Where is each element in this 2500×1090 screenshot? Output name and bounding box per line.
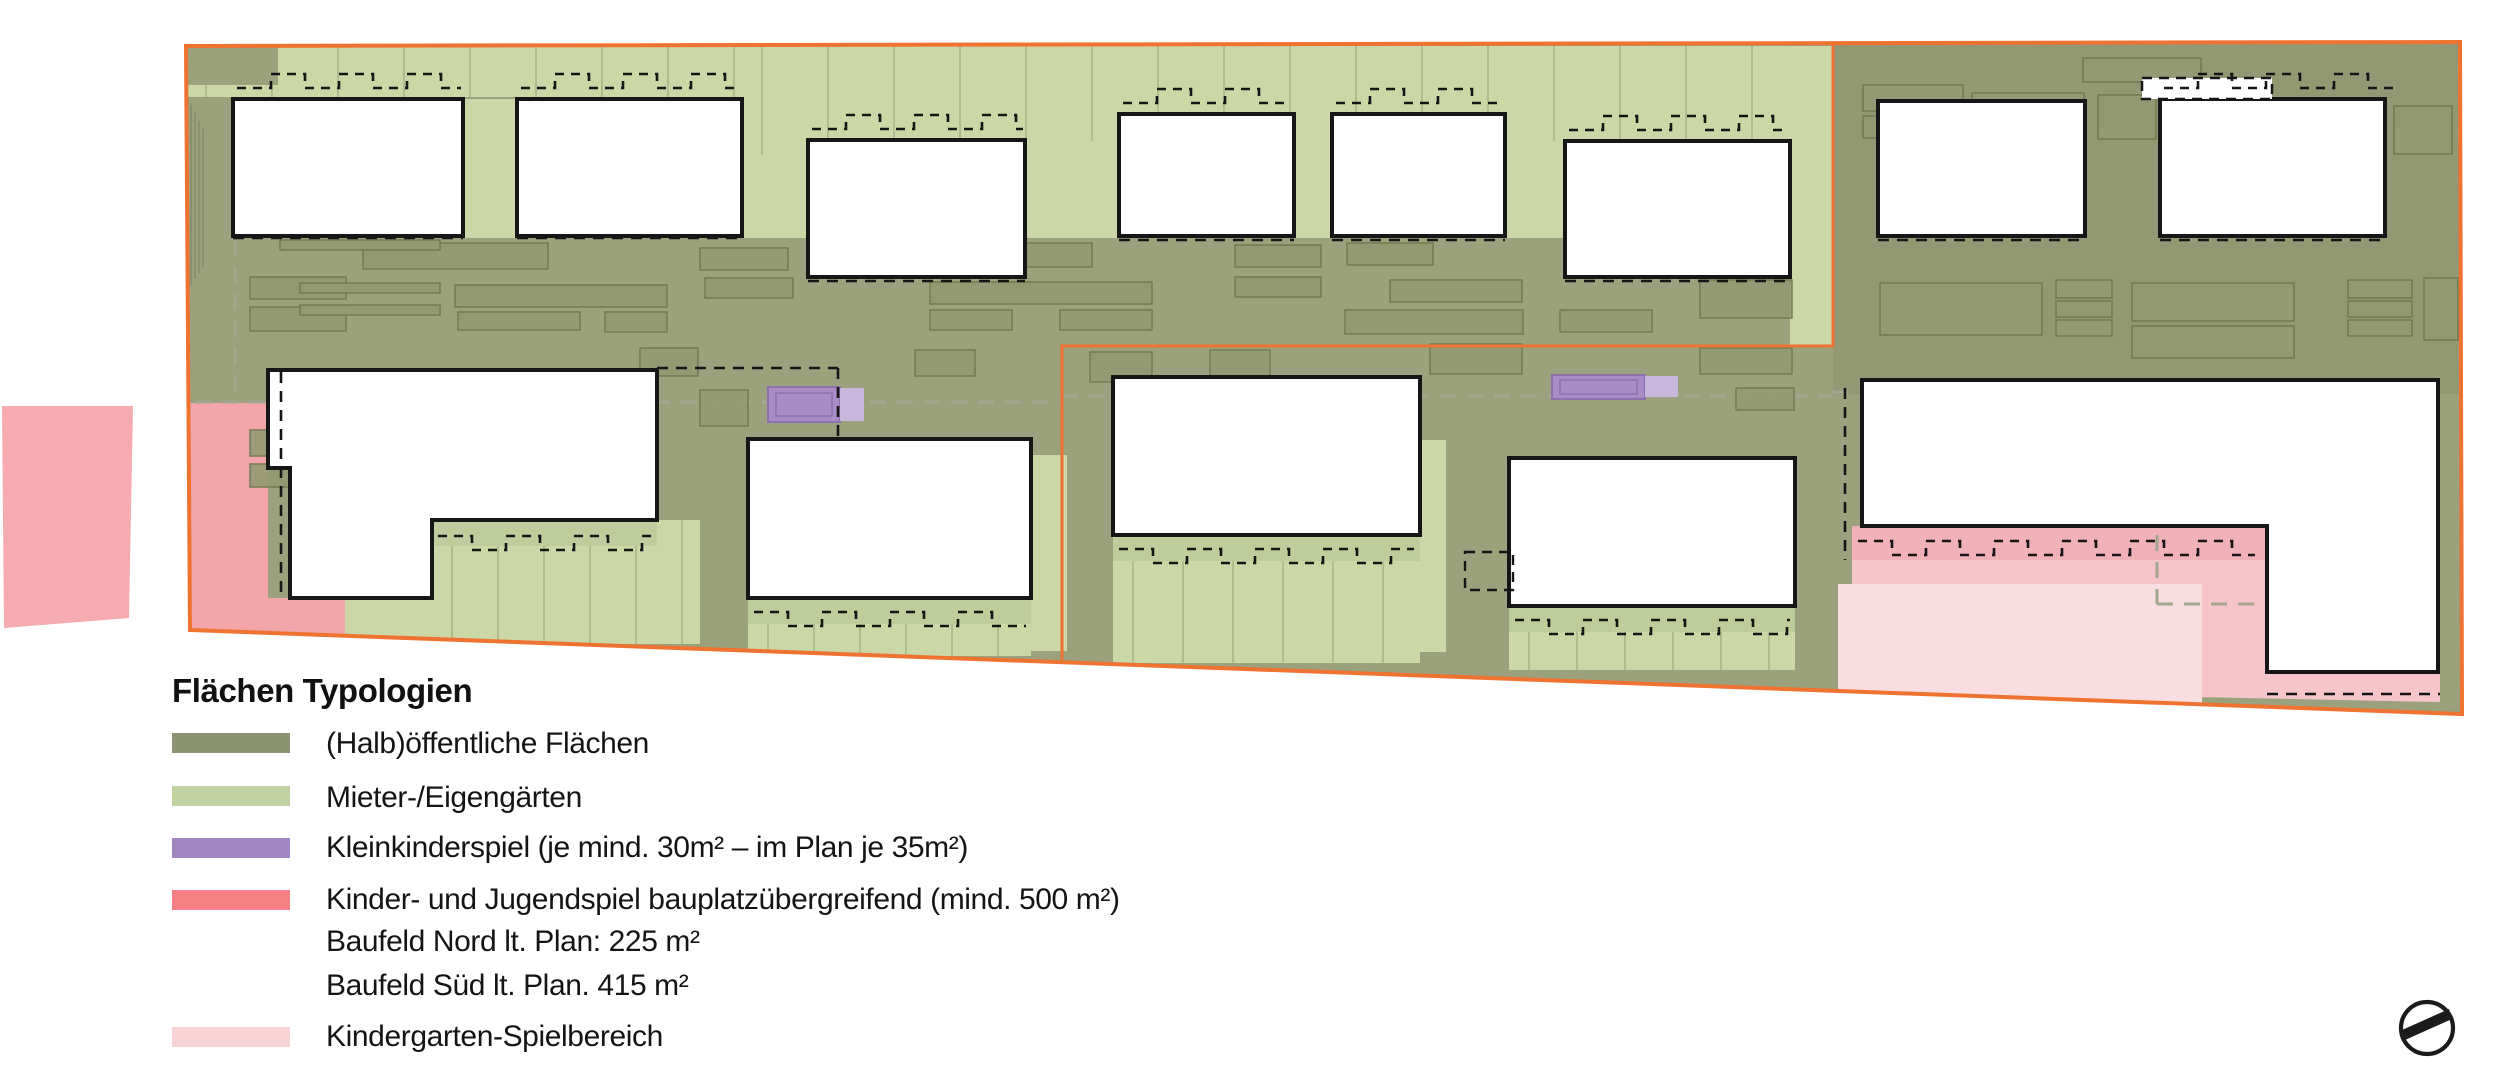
planting-rect — [2056, 280, 2112, 298]
compass-needle-icon — [2402, 1009, 2452, 1040]
planting-rect — [280, 240, 440, 250]
planting-rect — [1210, 350, 1270, 376]
planting-rect — [300, 283, 440, 293]
planting-rect — [1347, 243, 1433, 265]
planting-rect — [1235, 245, 1321, 267]
building-footprint — [1878, 101, 2085, 236]
zone-light — [1420, 440, 1446, 652]
building-footprint — [1332, 114, 1505, 236]
zone-light — [742, 155, 808, 238]
planting-rect — [1736, 388, 1794, 410]
zone-light — [1025, 141, 1119, 238]
zone-light — [463, 99, 517, 238]
building-footprint — [1113, 377, 1420, 535]
planting-rect — [1390, 280, 1522, 302]
planting-rect — [2424, 278, 2458, 340]
planting-rect — [458, 312, 580, 330]
page: Flächen Typologien (Halb)öffentliche Flä… — [0, 0, 2500, 1090]
planting-rect — [2348, 320, 2412, 336]
planting-rect — [915, 350, 975, 376]
site-areas — [186, 42, 2462, 714]
planting-rect — [700, 390, 748, 426]
planting-rect — [300, 305, 440, 315]
planting-rect — [2056, 301, 2112, 317]
planting-rect — [2098, 95, 2156, 139]
zone-pinkLighter — [1838, 584, 2202, 706]
building-footprint — [808, 140, 1025, 277]
planting-rect — [2056, 320, 2112, 336]
site-plan — [0, 0, 2500, 1090]
kleinkinderspiel-area — [1552, 375, 1645, 399]
planting-rect — [930, 282, 1152, 304]
planting-rect — [2132, 283, 2294, 321]
jugendspiel-offsite-area — [2, 406, 133, 628]
planting-rect — [2348, 280, 2412, 298]
zone-hatch — [432, 520, 657, 546]
planting-rect — [1235, 277, 1321, 297]
planting-rect — [2348, 301, 2412, 317]
planting-rect — [1430, 344, 1522, 374]
building-footprint — [748, 439, 1031, 598]
kleinkinderspiel-ext — [840, 388, 864, 421]
planting-rect — [2394, 106, 2452, 154]
building-footprint — [233, 99, 463, 236]
planting-rect — [1060, 310, 1152, 330]
planting-rect — [2132, 326, 2294, 358]
building-footprint — [517, 99, 742, 236]
building-footprint — [1565, 141, 1790, 277]
building-footprint — [1509, 458, 1795, 606]
planting-rect — [1560, 310, 1652, 332]
kleinkinderspiel-ext — [1645, 376, 1678, 397]
planting-rect — [1345, 310, 1523, 334]
building-footprint — [1119, 114, 1294, 236]
planting-rect — [455, 285, 667, 307]
planting-rect — [1700, 280, 1792, 318]
zone-hatch — [1113, 535, 1420, 561]
zone-light — [1294, 114, 1332, 238]
planting-rect — [705, 278, 793, 298]
planting-rect — [700, 248, 788, 270]
zone-olive — [186, 46, 278, 85]
planting-rect — [1880, 283, 2042, 335]
planting-rect — [605, 312, 667, 332]
planting-rect — [1700, 348, 1792, 374]
building-footprint — [2160, 99, 2385, 236]
zone-light — [1505, 141, 1565, 238]
planting-rect — [930, 310, 1012, 330]
zone-light — [1790, 46, 1833, 346]
